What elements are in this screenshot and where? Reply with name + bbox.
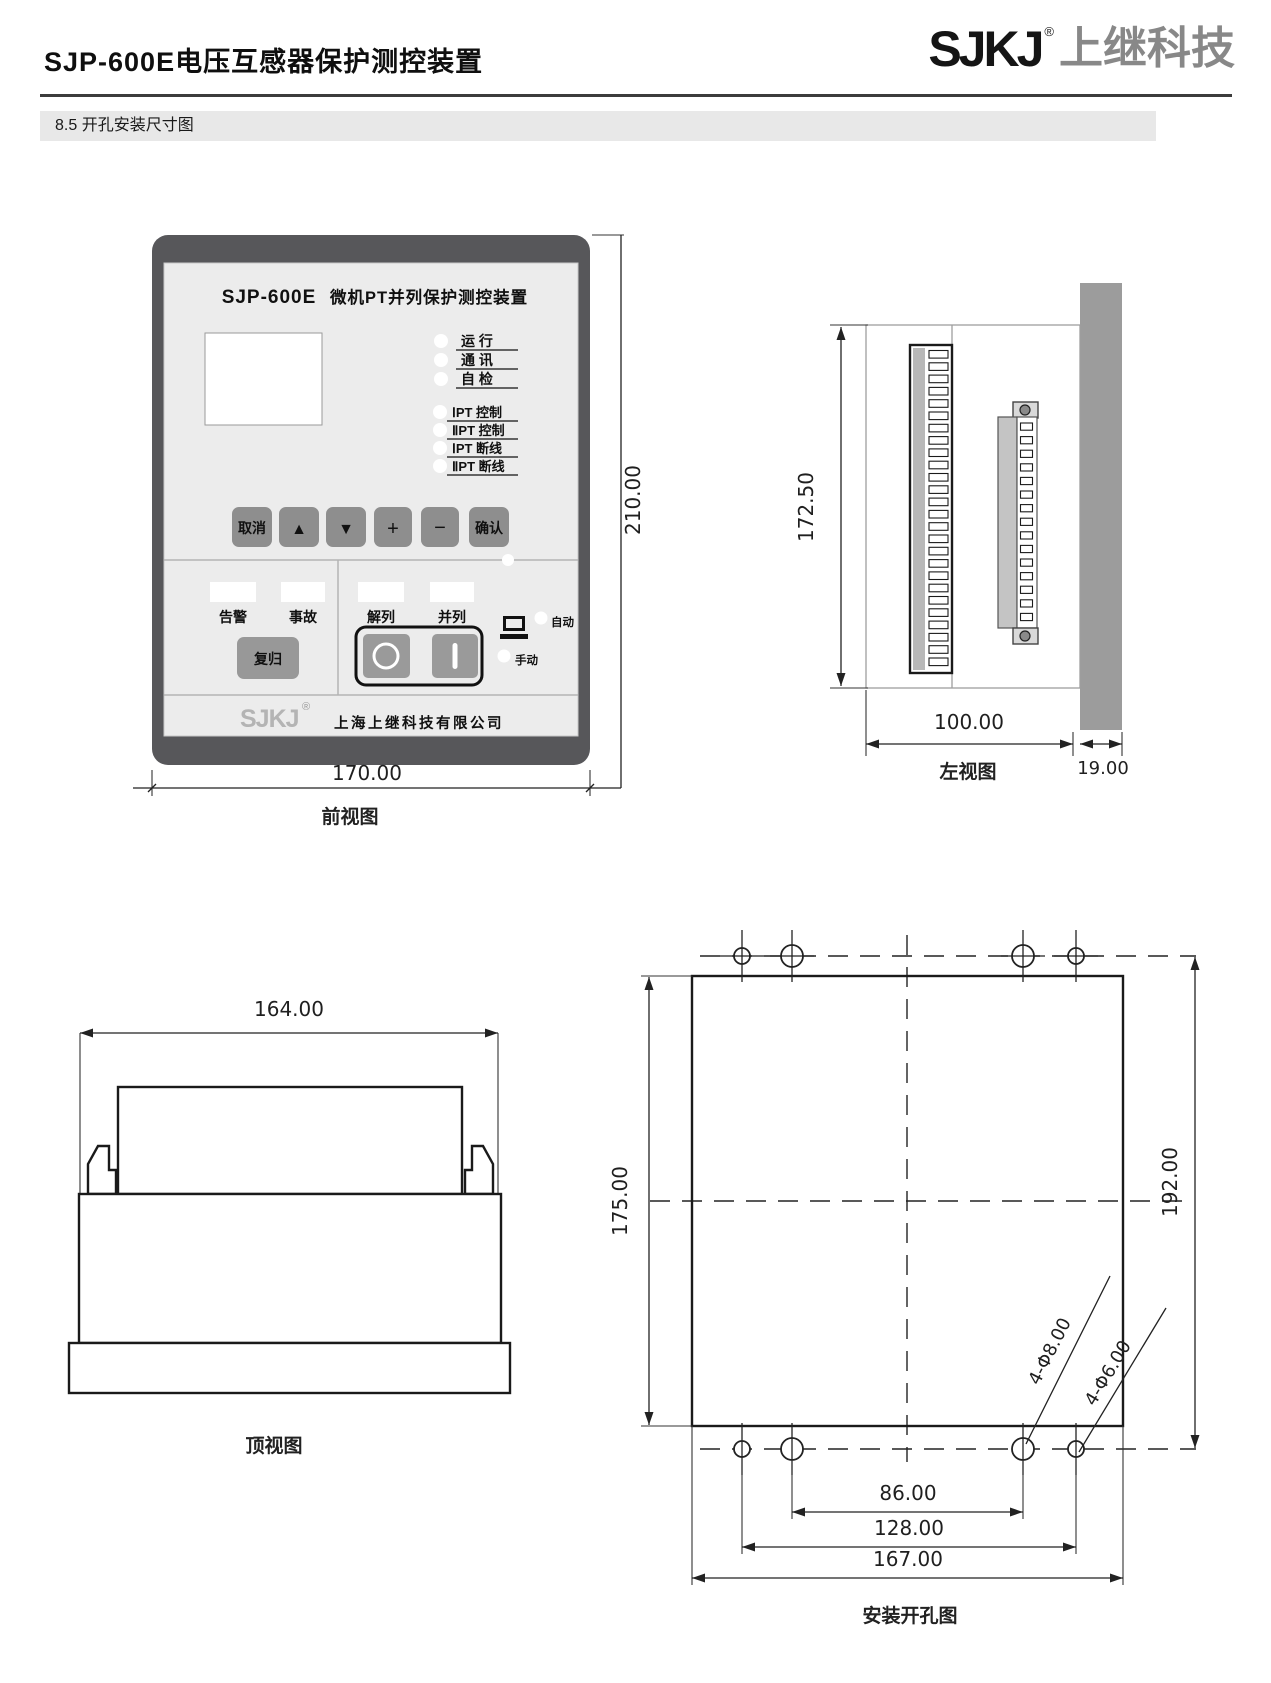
top-view-caption: 顶视图 <box>245 1434 302 1457</box>
terminal-slot <box>929 474 948 482</box>
terminal-slot <box>1021 477 1033 484</box>
front-width-dim: 170.00 <box>332 761 402 785</box>
fault-label: 事故 <box>289 609 318 625</box>
arrowhead <box>1109 740 1122 749</box>
manual-label: 手动 <box>515 653 538 667</box>
parallel-label: 并列 <box>438 609 466 625</box>
cutout-width-dim: 167.00 <box>873 1547 943 1571</box>
terminal-slot <box>929 461 948 469</box>
terminal-slot <box>929 486 948 494</box>
terminal-slot <box>1021 559 1033 566</box>
computer-base-icon <box>500 634 528 639</box>
inner-span-dim: 86.00 <box>879 1481 936 1505</box>
arrowhead <box>742 1543 755 1552</box>
arrowhead <box>866 740 879 749</box>
auto-label: 自动 <box>551 615 574 629</box>
minus-key-label: − <box>434 517 446 539</box>
pt1-control-label: ⅠPT 控制 <box>452 405 502 420</box>
terminal-slot <box>1021 505 1033 512</box>
pt2-control-led-icon <box>433 423 447 437</box>
connector-slots <box>1021 423 1033 621</box>
terminal-slot <box>1021 518 1033 525</box>
screw-icon <box>1020 405 1030 415</box>
arrowhead <box>1191 957 1200 970</box>
terminal-slot <box>1021 423 1033 430</box>
outer-span-dim: 128.00 <box>874 1516 944 1540</box>
top-width-dim: 164.00 <box>254 997 324 1021</box>
arrowhead <box>692 1574 705 1583</box>
front-height-dim: 210.00 <box>621 465 645 535</box>
left-view-caption: 左视图 <box>939 760 996 783</box>
terminal-slot <box>929 498 948 506</box>
split-label: 解列 <box>367 609 395 625</box>
front-flange <box>69 1343 510 1393</box>
front-view-caption: 前视图 <box>321 805 378 828</box>
down-arrow-icon: ▼ <box>338 521 354 538</box>
terminal-slot <box>929 572 948 580</box>
terminal-slot <box>929 449 948 457</box>
terminal-slot <box>929 658 948 666</box>
cutout-height-dim: 175.00 <box>608 1166 632 1236</box>
arrowhead <box>1010 1508 1023 1517</box>
pt2-break-label: ⅡPT 断线 <box>452 459 505 474</box>
run-led-label: 运 行 <box>461 333 493 349</box>
run-led-icon <box>434 334 448 348</box>
terminal-slot <box>1021 450 1033 457</box>
auto-led-icon <box>535 612 548 625</box>
arrowhead <box>1060 740 1073 749</box>
pt2-break-led-icon <box>433 459 447 473</box>
arrowhead <box>645 1412 654 1425</box>
confirm-key-label: 确认 <box>475 520 504 536</box>
connector-plate <box>998 417 1017 628</box>
reset-key-label: 复归 <box>253 651 282 667</box>
terminal-slot <box>929 510 948 518</box>
front-view: SJP-600E 微机PT并列保护测控装置 运 行 通 讯 自 检 ⅠPT 控制 <box>133 235 645 828</box>
install-view: 175.00 192.00 4-Φ8.00 4-Φ6.00 86.00 128. <box>608 930 1200 1627</box>
panel-title: 微机PT并列保护测控装置 <box>329 287 528 307</box>
up-arrow-icon: ▲ <box>291 521 307 538</box>
mounting-panel <box>1080 283 1122 730</box>
terminal-slot <box>1021 437 1033 444</box>
hole-dia-outer-label: 4-Φ6.00 <box>1081 1337 1136 1410</box>
arrowhead <box>837 327 846 340</box>
terminal-slot <box>929 535 948 543</box>
panel-brand: SJKJ <box>240 705 299 733</box>
terminal-slot <box>929 412 948 420</box>
hole-dia-inner-label: 4-Φ8.00 <box>1024 1315 1075 1389</box>
arrowhead <box>1110 1574 1123 1583</box>
split-window <box>358 582 404 602</box>
switch-on-symbol-icon <box>453 643 458 669</box>
pt1-control-led-icon <box>433 405 447 419</box>
terminal-slot <box>929 560 948 568</box>
top-view: 164.00 顶视图 <box>69 997 510 1457</box>
lcd-screen <box>205 333 322 425</box>
terminal-slot <box>929 609 948 617</box>
selfcheck-led-label: 自 检 <box>461 371 493 387</box>
panel-thickness-dim: 19.00 <box>1077 758 1129 779</box>
selfcheck-led-icon <box>434 372 448 386</box>
terminal-slot <box>929 597 948 605</box>
terminal-slot <box>929 621 948 629</box>
terminal-slot <box>1021 586 1033 593</box>
case-outline <box>866 325 1080 688</box>
rear-block <box>118 1087 462 1194</box>
terminal-slot <box>929 375 948 383</box>
terminal-slot <box>929 400 948 408</box>
manual-page: SJP-600E电压互感器保护测控装置 SJKJ ® 上继科技 8.5 开孔安装… <box>0 0 1271 1683</box>
dimension-drawings: SJP-600E 微机PT并列保护测控装置 运 行 通 讯 自 检 ⅠPT 控制 <box>0 0 1271 1683</box>
arrowhead <box>837 673 846 686</box>
cancel-key-label: 取消 <box>238 520 266 536</box>
left-latch <box>88 1146 116 1194</box>
plus-key-label: + <box>387 518 399 540</box>
alarm-label: 告警 <box>219 609 247 625</box>
right-latch <box>465 1146 493 1194</box>
fault-window <box>281 582 325 602</box>
terminal-slot <box>929 363 948 371</box>
terminal-slot <box>1021 545 1033 552</box>
pt1-break-label: ⅠPT 断线 <box>452 441 502 456</box>
arrowhead <box>1063 1543 1076 1552</box>
terminal-slot <box>929 351 948 359</box>
arrowhead <box>485 1029 498 1038</box>
arrowhead <box>645 977 654 990</box>
terminal-slot <box>929 523 948 531</box>
terminal-slot <box>929 646 948 654</box>
terminal-slot <box>929 547 948 555</box>
install-view-caption: 安装开孔图 <box>862 1604 957 1627</box>
terminal-slot <box>929 424 948 432</box>
comm-led-label: 通 讯 <box>461 352 493 368</box>
terminal-slot <box>1021 532 1033 539</box>
panel-brand-reg-icon: ® <box>302 701 310 713</box>
case-body <box>79 1194 501 1343</box>
depth-dim: 100.00 <box>934 710 1004 734</box>
comm-led-icon <box>434 353 448 367</box>
screw-icon <box>1020 631 1030 641</box>
manual-led-icon <box>498 650 511 663</box>
terminal-slot <box>929 584 948 592</box>
pt1-break-led-icon <box>433 441 447 455</box>
parallel-window <box>430 582 474 602</box>
terminal-slot <box>1021 600 1033 607</box>
computer-screen-icon <box>506 619 522 628</box>
switch-off-button <box>363 634 410 678</box>
pt2-control-label: ⅡPT 控制 <box>452 423 505 438</box>
terminal-slot <box>1021 613 1033 620</box>
terminal-slot <box>929 437 948 445</box>
terminal-slot <box>1021 573 1033 580</box>
company-name: 上海上继科技有限公司 <box>334 714 504 732</box>
terminal-slot <box>929 633 948 641</box>
arrowhead <box>792 1508 805 1517</box>
left-view: 172.50 100.00 19.00 左视图 <box>794 283 1129 783</box>
divider-led-icon <box>502 554 514 566</box>
arrowhead <box>80 1029 93 1038</box>
terminal-slot <box>1021 491 1033 498</box>
terminal-slot <box>929 387 948 395</box>
terminal-slot <box>1021 464 1033 471</box>
hole-span-vertical-dim: 192.00 <box>1158 1147 1182 1217</box>
arrowhead <box>1191 1435 1200 1448</box>
side-height-dim: 172.50 <box>794 472 818 542</box>
arrowhead <box>1080 740 1093 749</box>
panel-model: SJP-600E <box>222 287 317 308</box>
alarm-window <box>210 582 256 602</box>
terminal-block-rail <box>913 348 925 670</box>
